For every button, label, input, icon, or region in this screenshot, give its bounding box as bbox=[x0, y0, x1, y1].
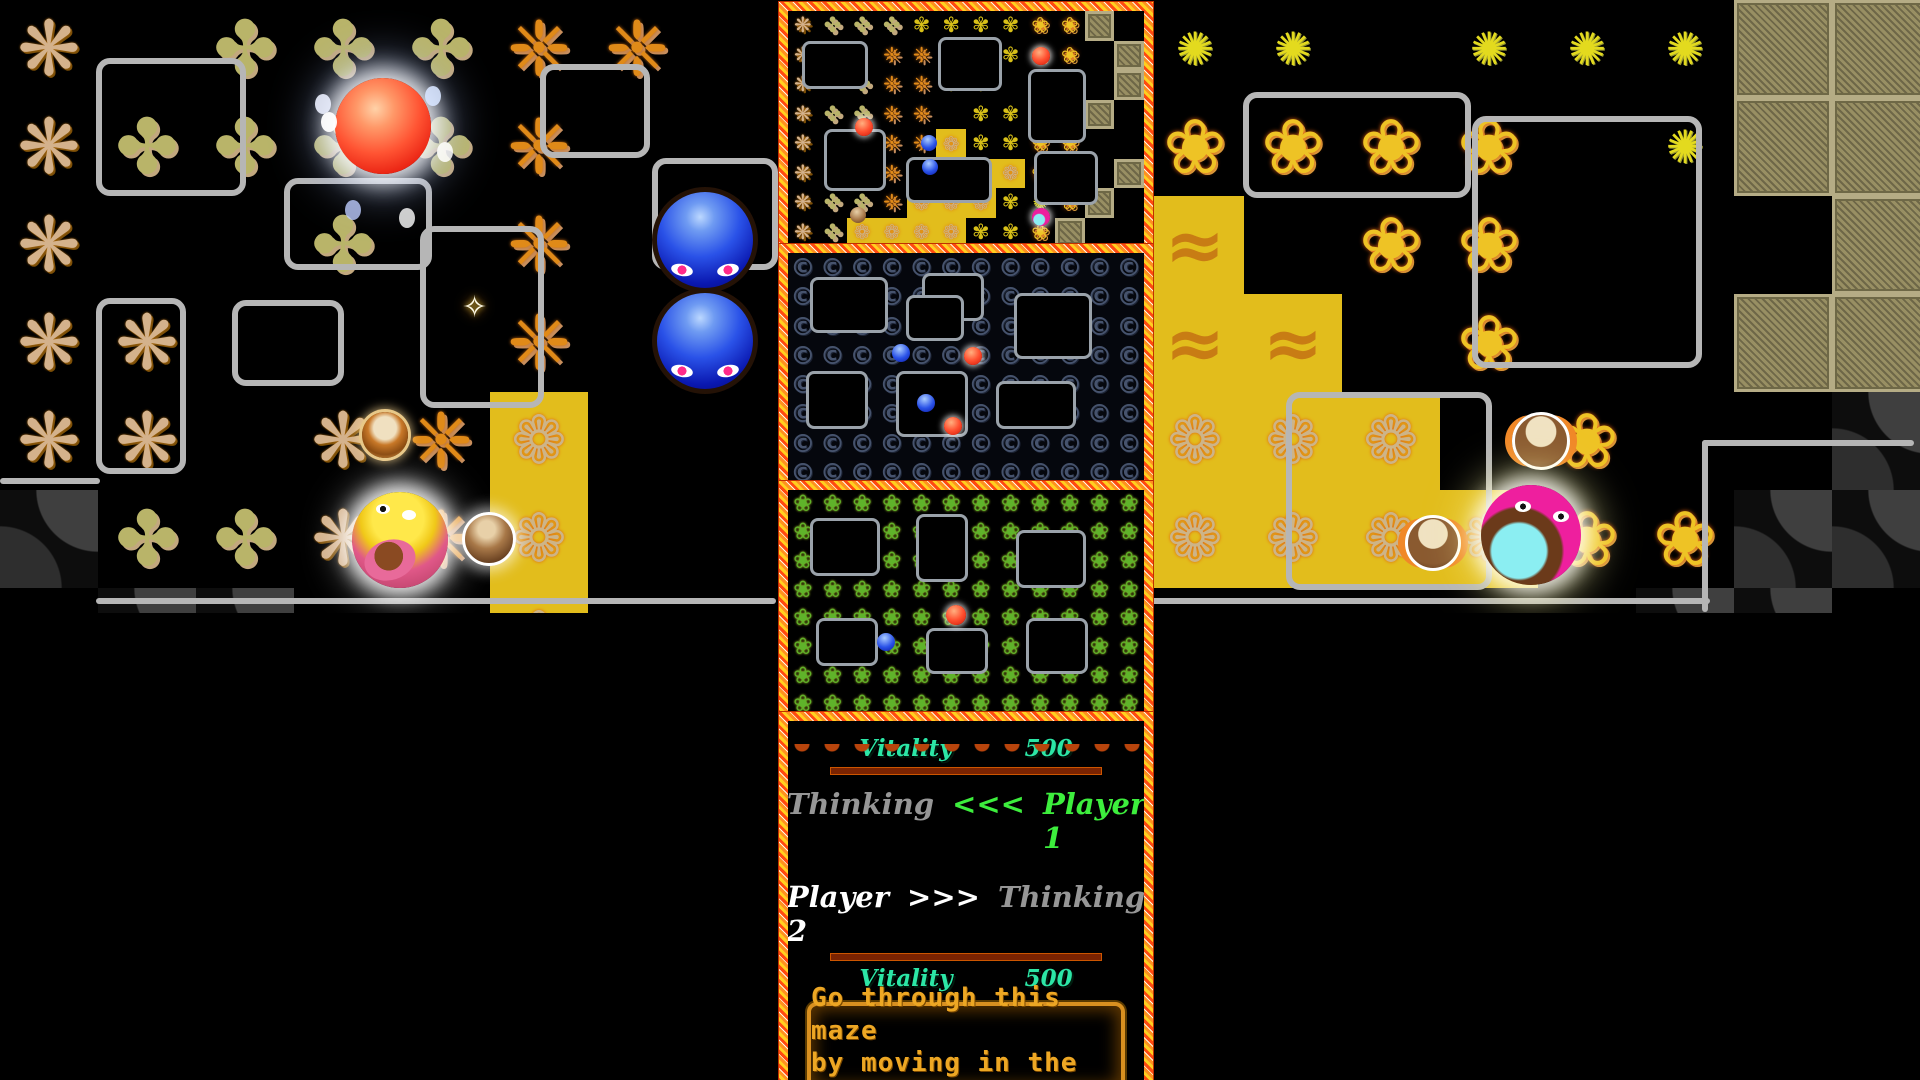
minimap-tile-ctile: © bbox=[788, 341, 818, 370]
tile-khaki bbox=[1734, 294, 1832, 392]
minimap-tile-blank bbox=[936, 100, 966, 130]
ring-creature bbox=[362, 412, 408, 458]
p1-vitality-bar bbox=[831, 768, 1101, 774]
minimap-wall bbox=[1016, 530, 1086, 588]
minimap-wall bbox=[1034, 151, 1098, 205]
p2-turn-row: Player 2 >>> Thinking bbox=[788, 880, 1144, 948]
minimap-tile-star: ❋ bbox=[788, 100, 818, 130]
minimap-tile-gold: ❁ bbox=[847, 218, 877, 248]
minimap-dot-pink bbox=[1032, 208, 1050, 226]
minimap-wall bbox=[810, 518, 880, 576]
minimap-tile-clover: ❀ bbox=[877, 519, 907, 548]
player2-character bbox=[1481, 485, 1581, 585]
minimap-dot-red bbox=[944, 417, 962, 435]
p1-turn-arrows: <<< bbox=[952, 787, 1025, 821]
minimap-tile-ctile: © bbox=[818, 429, 848, 458]
minimap-tile-ctile: © bbox=[996, 253, 1026, 282]
minimap-tile-ctile: © bbox=[1085, 399, 1115, 428]
minimap-tile-leaf: ✤ bbox=[818, 100, 848, 130]
minimap-tile-clover: ❀ bbox=[788, 662, 818, 691]
minimap-wall bbox=[1014, 293, 1092, 359]
minimap-tile-clover: ❀ bbox=[788, 490, 818, 519]
minimap-tile-star: ❋ bbox=[788, 159, 818, 189]
minimap-tile-clover: ❀ bbox=[877, 605, 907, 634]
minimap-tile-ctile: © bbox=[818, 341, 848, 370]
minimap-tile-ctile: © bbox=[1055, 429, 1085, 458]
minimap-tile-ctile: © bbox=[1114, 429, 1144, 458]
maze-wall bbox=[0, 478, 100, 484]
maze-wall bbox=[96, 58, 246, 196]
minimap-dot-red bbox=[855, 118, 873, 136]
tile-star: ❋ bbox=[0, 98, 98, 196]
minimap-tile-star: ❋ bbox=[788, 218, 818, 248]
tile-pin: ✺ bbox=[1538, 0, 1636, 98]
minimap-tile-blank bbox=[1085, 41, 1115, 71]
minimap-tile-clover: ❀ bbox=[1085, 519, 1115, 548]
minimap-tile-ctile: © bbox=[1085, 253, 1115, 282]
minimap-tile-leaf: ✤ bbox=[847, 11, 877, 41]
minimap-tile-gold: ❁ bbox=[936, 218, 966, 248]
maze-wall bbox=[1702, 440, 1708, 612]
minimap-dot-red bbox=[1032, 47, 1050, 65]
minimap-tile-clover: ❀ bbox=[788, 605, 818, 634]
status-panel: Vitality 500 Thinking <<< Player 1 Playe… bbox=[779, 712, 1153, 1080]
minimap-tile-khaki bbox=[1114, 70, 1144, 100]
tile-flower: ❀ bbox=[1636, 490, 1734, 588]
minimap-tile-flower: ❀ bbox=[1025, 11, 1055, 41]
minimap-tile-ornate: ❈ bbox=[877, 41, 907, 71]
minimap-tile-blank bbox=[1114, 11, 1144, 41]
minimap-tile-clover: ❀ bbox=[996, 662, 1026, 691]
yellow-creature bbox=[352, 492, 448, 588]
p1-name-label: Player 1 bbox=[1043, 787, 1144, 855]
tile-gold: ❁ bbox=[1146, 490, 1244, 588]
brown-orb-creature bbox=[462, 512, 516, 566]
minimap-tile-ornate: ❈ bbox=[877, 188, 907, 218]
tile-swirl: ≈ bbox=[1146, 196, 1244, 294]
minimap-tile-clover: ❀ bbox=[877, 490, 907, 519]
minimap-tile-golddot: ✾ bbox=[966, 100, 996, 130]
p1-turn-row: Thinking <<< Player 1 bbox=[788, 787, 1144, 855]
tile-star: ❋ bbox=[0, 196, 98, 294]
minimap-tile-blank bbox=[1085, 70, 1115, 100]
minimap-tile-ctile: © bbox=[847, 341, 877, 370]
left-maze-viewport[interactable]: ❋❋❋❋❋❋❋❋❋✤✤✤✤✤✤✤✤✤✤❈❈❈❈❈❈❈❁❁❁ bbox=[0, 0, 778, 613]
minimap-tile-golddot: ✾ bbox=[966, 218, 996, 248]
minimap-tile-clover: ❀ bbox=[1114, 605, 1144, 634]
minimap-wall bbox=[906, 295, 964, 341]
minimap-tile-ctile: © bbox=[1114, 370, 1144, 399]
minimap-tile-clover: ❀ bbox=[1114, 662, 1144, 691]
minimap-tile-clover: ❀ bbox=[996, 605, 1026, 634]
tile-pin: ✺ bbox=[1146, 0, 1244, 98]
minimap-tile-ctile: © bbox=[1025, 429, 1055, 458]
minimap-tile-clover: ❀ bbox=[788, 633, 818, 662]
minimap-tile-golddot: ✾ bbox=[996, 129, 1026, 159]
minimap-tile-ornate: ❈ bbox=[907, 70, 937, 100]
tile-khaki bbox=[1832, 0, 1920, 98]
minimap-tile-ctile: © bbox=[788, 429, 818, 458]
minimap-tile-ctile: © bbox=[1114, 399, 1144, 428]
minimap-tile-clover: ❀ bbox=[1055, 490, 1085, 519]
minimap-tile-clover: ❀ bbox=[1114, 576, 1144, 605]
tile-pin: ✺ bbox=[1244, 0, 1342, 98]
maze-wall bbox=[1286, 392, 1492, 590]
minimap-dot-brown bbox=[850, 207, 866, 223]
maze-wall bbox=[1150, 598, 1710, 604]
hint-message-box: Go through this maze by moving in the fo… bbox=[807, 1002, 1125, 1080]
tile-khaki bbox=[1734, 98, 1832, 196]
minimap-tile-golddot: ✾ bbox=[996, 188, 1026, 218]
p2-vitality-bar bbox=[831, 954, 1101, 960]
minimap-wall bbox=[1028, 69, 1086, 143]
minimap-tile-clover: ❀ bbox=[847, 490, 877, 519]
minimap-tile-ctile: © bbox=[966, 399, 996, 428]
minimap-tile-clover: ❀ bbox=[847, 576, 877, 605]
minimap-tile-ctile: © bbox=[1025, 253, 1055, 282]
minimap-tile-leaf: ✤ bbox=[877, 11, 907, 41]
minimap-tile-ctile: © bbox=[966, 370, 996, 399]
minimap-tile-ctile: © bbox=[1085, 370, 1115, 399]
minimap-dot-red bbox=[964, 347, 982, 365]
minimap-tile-star: ❋ bbox=[788, 188, 818, 218]
minimap-wall bbox=[802, 41, 868, 89]
game-screen: ❋❋❋❋❋❋❋❋❋✤✤✤✤✤✤✤✤✤✤❈❈❈❈❈❈❈❁❁❁ ✺✺✺✺✺✺❀❀❀❀… bbox=[0, 0, 1920, 1080]
minimap-wall bbox=[916, 514, 968, 582]
minimap-tile-khaki bbox=[1114, 41, 1144, 71]
minimap-tile-clover: ❀ bbox=[788, 576, 818, 605]
minimap-tile-clover: ❀ bbox=[1085, 633, 1115, 662]
minimap-tile-clover: ❀ bbox=[818, 576, 848, 605]
minimap-clover[interactable]: ❀❀❀❀❀❀❀❀❀❀❀❀❀❀❀❀❀❀❀❀❀❀❀❀❀❀❀❀❀❀❀❀❀❀❀❀❀❀❀❀… bbox=[779, 481, 1153, 728]
minimap-tile-golddot: ✾ bbox=[996, 11, 1026, 41]
maze-wall bbox=[1472, 116, 1702, 368]
minimap-tile-khaki bbox=[1085, 100, 1115, 130]
maze-wall bbox=[96, 298, 186, 474]
minimap-wall bbox=[824, 129, 886, 191]
minimap-wall bbox=[1026, 618, 1088, 674]
minimap-tile-ctile: © bbox=[1055, 253, 1085, 282]
minimap-tile-clover: ❀ bbox=[1085, 605, 1115, 634]
minimap-tile-clover: ❀ bbox=[1025, 490, 1055, 519]
enemy-blue-ball bbox=[652, 187, 758, 293]
minimap-tile-clover: ❀ bbox=[996, 633, 1026, 662]
tile-star: ❋ bbox=[0, 0, 98, 98]
minimap-dot-blue bbox=[877, 633, 895, 651]
minimap-tile-blank bbox=[1114, 100, 1144, 130]
minimap-tile-flower: ❀ bbox=[1055, 41, 1085, 71]
minimap-tile-ctile: © bbox=[1114, 282, 1144, 311]
hint-message-line1: Go through this maze bbox=[811, 982, 1121, 1047]
minimap-tile-star: ❋ bbox=[788, 129, 818, 159]
minimap-tile-ctile: © bbox=[996, 429, 1026, 458]
minimap-tile-clover: ❀ bbox=[818, 662, 848, 691]
minimap-tile-clover: ❀ bbox=[966, 519, 996, 548]
tile-deco bbox=[1734, 588, 1832, 613]
minimap-dot-blue bbox=[892, 344, 910, 362]
tile-deco bbox=[0, 490, 98, 588]
minimap-tile-flower: ❀ bbox=[1055, 11, 1085, 41]
maze-wall bbox=[96, 598, 776, 604]
minimap-tile-ctile: © bbox=[1114, 253, 1144, 282]
clock-creature bbox=[1512, 412, 1570, 470]
maze-wall bbox=[1702, 440, 1914, 446]
minimap-tile-ctile: © bbox=[936, 341, 966, 370]
minimap-wall bbox=[938, 37, 1002, 91]
minimap-tile-ctile: © bbox=[1114, 341, 1144, 370]
minimap-tile-blank bbox=[1114, 188, 1144, 218]
minimap-wall bbox=[810, 277, 888, 333]
minimap-tile-ctile: © bbox=[1085, 429, 1115, 458]
minimap-dark-c[interactable]: ©©©©©©©©©©©©©©©©©©©©©©©©©©©©©©©©©©©©©©©©… bbox=[779, 244, 1153, 496]
maze-wall bbox=[284, 178, 432, 270]
tile-flower: ❀ bbox=[1342, 196, 1440, 294]
minimap-wall bbox=[996, 381, 1076, 429]
minimap-overview[interactable]: ❋✤✤✤✾✾✾✾❀❀❋✤❈❈✾✾❀❀❋✤❈❈✾✾❀❀❋✤✤❈❈✾✾❀❀❋✤❈❈❁… bbox=[779, 2, 1153, 256]
minimap-tile-golddot: ✾ bbox=[966, 129, 996, 159]
tile-pin: ✺ bbox=[1636, 0, 1734, 98]
minimap-wall bbox=[806, 371, 868, 429]
tile-deco bbox=[1832, 490, 1920, 588]
tile-flower: ❀ bbox=[1146, 98, 1244, 196]
tile-khaki bbox=[1832, 98, 1920, 196]
tile-khaki bbox=[1734, 0, 1832, 98]
minimap-tile-clover: ❀ bbox=[1114, 519, 1144, 548]
minimap-tile-gold: ❁ bbox=[907, 218, 937, 248]
tile-star: ❋ bbox=[0, 392, 98, 490]
minimap-tile-clover: ❀ bbox=[1085, 490, 1115, 519]
tile-swirl: ≈ bbox=[1244, 294, 1342, 392]
minimap-tile-ornate: ❈ bbox=[877, 100, 907, 130]
minimap-tile-clover: ❀ bbox=[966, 576, 996, 605]
minimap-tile-gold: ❁ bbox=[877, 218, 907, 248]
minimap-tile-clover: ❀ bbox=[877, 547, 907, 576]
minimap-tile-khaki bbox=[1085, 11, 1115, 41]
maze-wall bbox=[1243, 92, 1471, 198]
minimap-tile-ctile: © bbox=[847, 429, 877, 458]
minimap-tile-ctile: © bbox=[907, 341, 937, 370]
enemy-blue-ball bbox=[652, 288, 758, 394]
minimap-tile-clover: ❀ bbox=[818, 490, 848, 519]
minimap-tile-ornate: ❈ bbox=[907, 100, 937, 130]
tile-khaki bbox=[1832, 196, 1920, 294]
tile-pin: ✺ bbox=[1440, 0, 1538, 98]
minimap-tile-ornate: ❈ bbox=[907, 41, 937, 71]
minimap-tile-blank bbox=[1114, 218, 1144, 248]
minimap-tile-clover: ❀ bbox=[877, 662, 907, 691]
hint-message-line2: by moving in the four bbox=[811, 1047, 1121, 1080]
minimap-wall bbox=[926, 628, 988, 674]
minimap-dot-red bbox=[946, 605, 966, 625]
minimap-tile-clover: ❀ bbox=[1085, 547, 1115, 576]
p2-status-label: Thinking bbox=[998, 880, 1144, 914]
minimap-wall bbox=[906, 157, 992, 203]
tile-swirl: ≈ bbox=[1146, 294, 1244, 392]
maze-wall bbox=[232, 300, 344, 386]
minimap-tile-clover: ❀ bbox=[1114, 633, 1144, 662]
minimap-tile-leaf: ✤ bbox=[818, 218, 848, 248]
minimap-tile-clover: ❀ bbox=[847, 662, 877, 691]
tile-leaf: ✤ bbox=[196, 490, 294, 588]
p2-name-label: Player 2 bbox=[788, 880, 889, 948]
minimap-dot-blue bbox=[917, 394, 935, 412]
sparkle-wand bbox=[462, 290, 492, 320]
p1-status-label: Thinking bbox=[788, 787, 934, 821]
minimap-dot-blue bbox=[922, 159, 938, 175]
minimap-tile-clover: ❀ bbox=[966, 547, 996, 576]
minimap-dot-blue bbox=[921, 135, 937, 151]
minimap-tile-ornate: ❈ bbox=[877, 70, 907, 100]
minimap-wall bbox=[816, 618, 878, 666]
minimap-tile-star: ❋ bbox=[788, 11, 818, 41]
minimap-tile-clover: ❀ bbox=[1085, 662, 1115, 691]
minimap-tile-ctile: © bbox=[1114, 312, 1144, 341]
minimap-tile-ctile: © bbox=[966, 429, 996, 458]
minimap-tile-gold: ❁ bbox=[936, 129, 966, 159]
tile-star: ❋ bbox=[0, 294, 98, 392]
maze-wall bbox=[540, 64, 650, 158]
tile-gold: ❁ bbox=[1146, 392, 1244, 490]
minimap-tile-gold: ❁ bbox=[996, 159, 1026, 189]
minimap-tile-clover: ❀ bbox=[996, 490, 1026, 519]
minimap-tile-golddot: ✾ bbox=[996, 100, 1026, 130]
minimap-tile-clover: ❀ bbox=[966, 490, 996, 519]
minimap-tile-blank bbox=[1085, 218, 1115, 248]
tile-leaf: ✤ bbox=[98, 490, 196, 588]
minimap-tile-blank bbox=[1114, 129, 1144, 159]
clock-creature bbox=[1405, 515, 1461, 571]
tile-khaki bbox=[1832, 294, 1920, 392]
p2-turn-arrows: >>> bbox=[907, 880, 980, 914]
minimap-tile-clover: ❀ bbox=[1085, 576, 1115, 605]
minimap-tile-clover: ❀ bbox=[877, 576, 907, 605]
minimap-tile-leaf: ✤ bbox=[818, 11, 848, 41]
tile-deco bbox=[1734, 490, 1832, 588]
minimap-tile-khaki bbox=[1055, 218, 1085, 248]
player1-character bbox=[335, 78, 431, 174]
minimap-tile-khaki bbox=[1114, 159, 1144, 189]
minimap-tile-golddot: ✾ bbox=[996, 218, 1026, 248]
minimap-tile-clover: ❀ bbox=[1114, 490, 1144, 519]
minimap-tile-leaf: ✤ bbox=[818, 188, 848, 218]
minimap-tile-clover: ❀ bbox=[1114, 547, 1144, 576]
minimap-tile-golddot: ✾ bbox=[907, 11, 937, 41]
right-maze-viewport[interactable]: ✺✺✺✺✺✺❀❀❀❀❀❀❀❀❀❀❀≈≈≈❁❁❁❁❁❁❁ bbox=[1146, 0, 1920, 613]
